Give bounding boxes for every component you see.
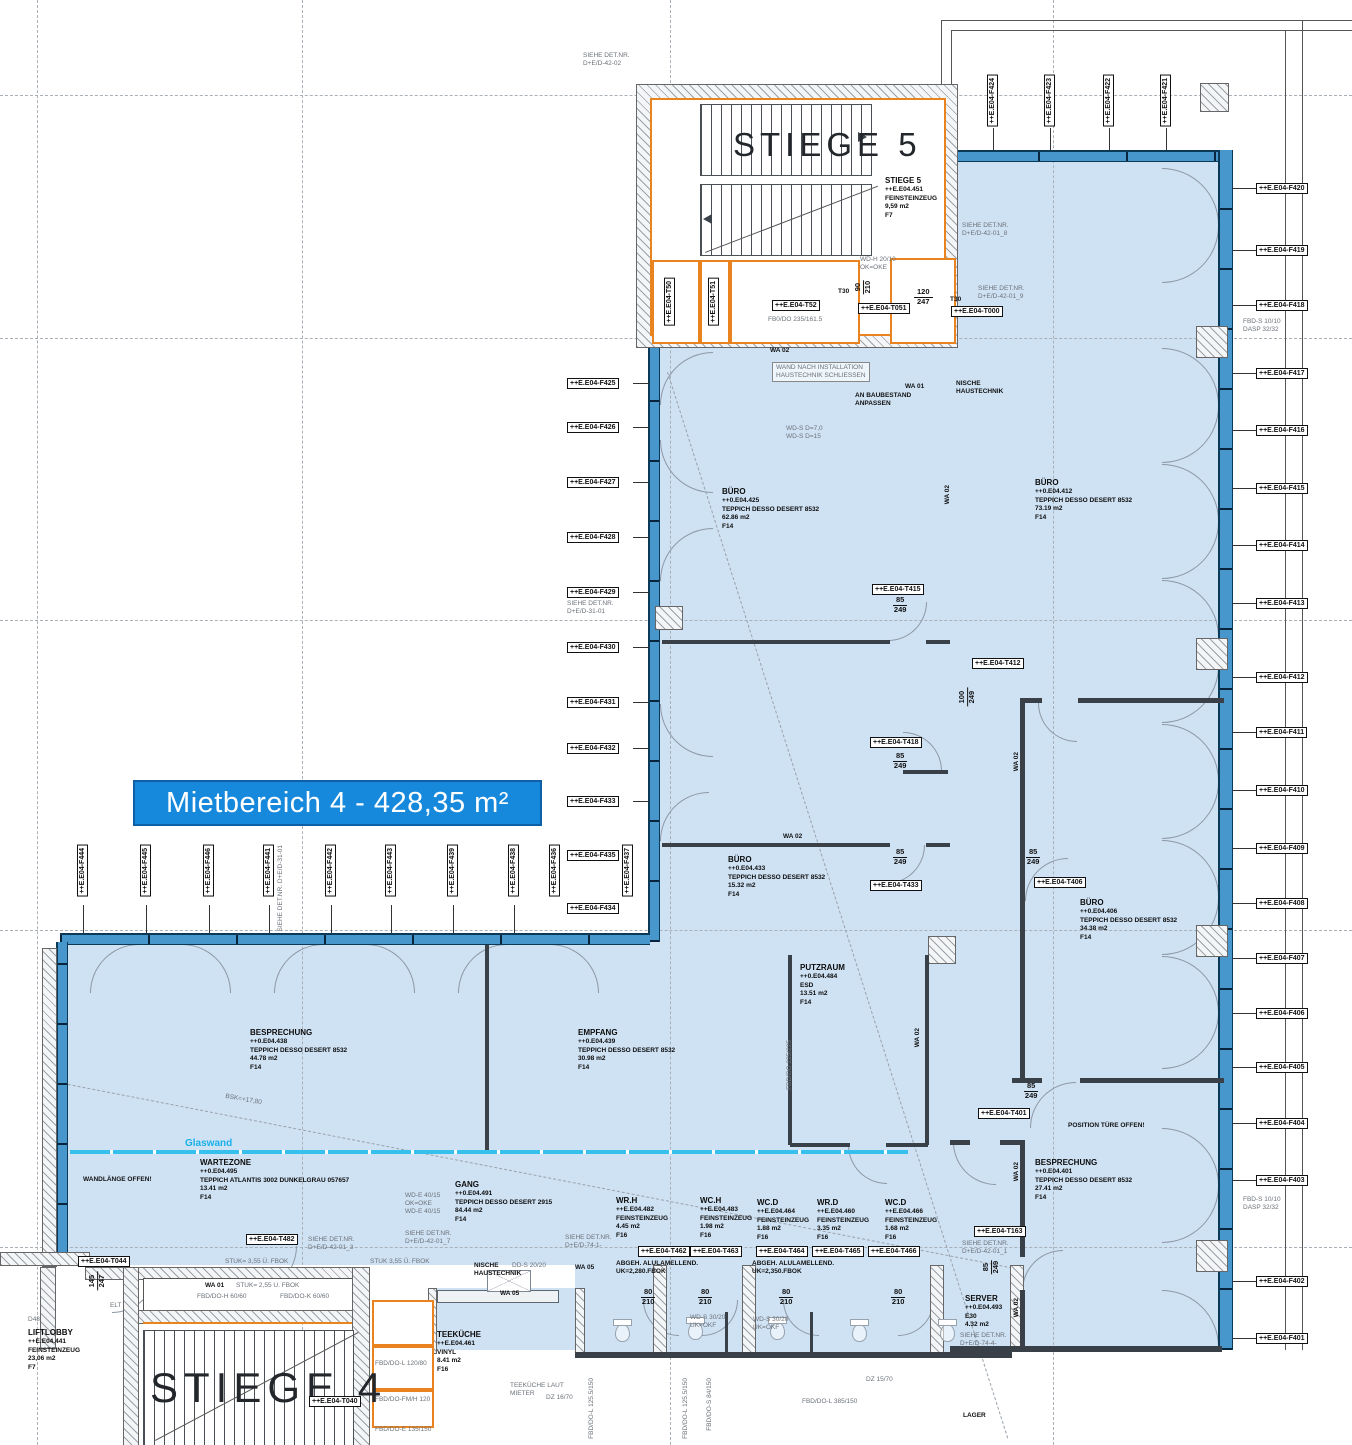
ref-tag: ++E.E04-T412 — [972, 658, 1024, 669]
annotation-text: NISCHE HAUSTECHNIK — [956, 380, 1003, 396]
annotation-text: FBD/DO-L 385/150 — [802, 1398, 857, 1406]
room-label-besprechung-401: BESPRECHUNG++0.E04.401TEPPICH DESSO DESE… — [1035, 1158, 1132, 1202]
wc-divider — [725, 1312, 728, 1352]
tag-leader — [1050, 128, 1051, 150]
facade-leftwing-left — [56, 942, 68, 1265]
ref-tag: ++E.E04-T401 — [978, 1108, 1030, 1119]
annotation-text: FBD/DO-FM/H 120 — [375, 1396, 430, 1404]
tag-leader — [1109, 128, 1110, 150]
ref-tag: ++E.E04-F414 — [1256, 540, 1308, 551]
ref-tag: ++E.E04-F438 — [508, 845, 519, 897]
partition-wall — [1000, 1140, 1022, 1145]
tag-leader — [1232, 677, 1256, 678]
ref-tag: ++E.E04-T462 — [638, 1246, 690, 1257]
tag-leader — [1232, 1013, 1256, 1014]
ref-tag: ++E.E04-T040 — [309, 1396, 361, 1407]
tag-leader — [633, 427, 649, 428]
annotation-text: FBD/DO 225/225 — [786, 1040, 794, 1090]
room-label-wcd-466: WC.D++E.E04.466FEINSTEINZEUG1.68 m2F16 — [885, 1198, 937, 1242]
facade-central-left — [648, 345, 660, 942]
tag-leader — [1232, 1281, 1256, 1282]
wc-divider — [810, 1312, 813, 1352]
shaft-room — [372, 1300, 434, 1346]
annotation-text: WA 02 — [1013, 1298, 1021, 1317]
room-label-wrd-460: WR.D++E.E04.460FEINSTEINZEUG3.35 m2F16 — [817, 1198, 869, 1242]
annotation-text: SIEHE DET.NR. D+E/D-31-01 — [567, 600, 614, 616]
annotation-text: ELT — [110, 1302, 121, 1310]
column — [655, 606, 683, 630]
column — [1196, 326, 1228, 358]
annotation-text: POSITION TÜRE OFFEN! — [1068, 1122, 1145, 1130]
boundary-line — [1285, 30, 1286, 1350]
stiege4-orange-edge — [143, 1322, 352, 1324]
room-label-buero-412: BÜRO++0.E04.412TEPPICH DESSO DESERT 8532… — [1035, 478, 1132, 522]
tag-leader — [331, 905, 332, 933]
ref-tag: ++E.E04-F442 — [325, 845, 336, 897]
ref-tag: ++E.E04-F431 — [567, 697, 619, 708]
partition-wall — [950, 1140, 970, 1145]
tag-leader — [1232, 732, 1256, 733]
annotation-text: FBD/DO-K 60/60 — [280, 1293, 329, 1301]
door-dimension: 85249 — [893, 596, 907, 614]
annotation-text: WA 02 — [1013, 752, 1021, 771]
room-label-empfang-439: EMPFANG++0.E04.439TEPPICH DESSO DESERT 8… — [578, 1028, 675, 1072]
ref-tag: ++E.E04-F406 — [1256, 1008, 1308, 1019]
tag-leader — [1232, 545, 1256, 546]
tag-leader — [1232, 1067, 1256, 1068]
annotation-text: WD-S D=7,0 WD-S D=15 — [786, 425, 823, 441]
ref-tag: ++E.E04-F407 — [1256, 953, 1308, 964]
ref-tag: ++E.E04-T418 — [870, 737, 922, 748]
annotation-text: SIEHE DET.NR. D+E/D-42-01_9 — [978, 285, 1025, 301]
annotation-text: WA 02 — [770, 347, 789, 355]
room-label-gang-491: GANG++0.E04.491TEPPICH DESSO DESERT 2915… — [455, 1180, 552, 1224]
annotation-text: DZ 16/70 — [546, 1394, 573, 1402]
ref-tag: ++E.E04-F441 — [263, 845, 274, 897]
annotation-text: WAND NACH INSTALLATION HAUSTECHNIK SCHLI… — [772, 362, 870, 382]
annotation-text: WA 05 — [500, 1290, 519, 1298]
wall-wc-bottom — [575, 1352, 1012, 1358]
ref-tag: ++E.E04-T433 — [870, 880, 922, 891]
partition-wall — [1078, 698, 1224, 703]
annotation-text: WA 05 — [575, 1264, 594, 1272]
putzraum-wall — [925, 955, 929, 1145]
stiege4-wall — [123, 1267, 139, 1445]
lift-wall — [0, 1252, 90, 1266]
room-label-buero-406: BÜRO++0.E04.406TEPPICH DESSO DESERT 8532… — [1080, 898, 1177, 942]
glaswand-line — [70, 1150, 908, 1154]
tag-leader — [1232, 848, 1256, 849]
ref-tag: ++E.E04-T163 — [974, 1226, 1026, 1237]
ref-tag: ++E.E04-F420 — [1256, 183, 1308, 194]
grid-line-vertical — [302, 0, 303, 1445]
ref-tag: ++E.E04-F416 — [1256, 425, 1308, 436]
annotation-text: WA 01 — [905, 383, 924, 391]
tag-leader — [1232, 305, 1256, 306]
ref-tag: ++E.E04-F423 — [1044, 75, 1055, 127]
tag-leader — [1232, 1180, 1256, 1181]
annotation-text: WANDLÄNGE OFFEN! — [83, 1176, 152, 1184]
door-dimension: 80210 — [641, 1288, 655, 1306]
ref-tag: ++E.E04-T50 — [664, 278, 675, 326]
tag-leader — [633, 592, 649, 593]
ref-tag: ++E.E04-F443 — [385, 845, 396, 897]
room-label-buero-425: BÜRO++0.E04.425TEPPICH DESSO DESERT 8532… — [722, 487, 819, 531]
annotation-text: SIEHE DET.NR. D+E/D-42-01_1 — [962, 1240, 1009, 1256]
tag-leader — [453, 905, 454, 933]
door-dimension: 85249 — [893, 848, 907, 866]
room-label-wrh-482: WR.H++E.E04.482FEINSTEINZEUG4.45 m2F16 — [616, 1196, 668, 1240]
ref-tag: ++E.E04-F432 — [567, 743, 619, 754]
mietbereich-banner-text: Mietbereich 4 - 428,35 m² — [166, 787, 509, 820]
annotation-text: WD-S 30/20 UK=OKF — [753, 1316, 788, 1332]
annotation-text: FBD/DO-E 135/150 — [375, 1426, 431, 1434]
room-label-wcd-464: WC.D++E.E04.464FEINSTEINZEUG1.88 m2F16 — [757, 1198, 809, 1242]
ref-tag: ++E.E04-F444 — [77, 845, 88, 897]
ref-tag: ++E.E04-F434 — [567, 903, 619, 914]
tag-leader — [514, 905, 515, 933]
column — [1200, 83, 1229, 112]
wc-pier — [930, 1265, 944, 1354]
stiege5-closet — [652, 260, 700, 344]
putzraum-wall — [886, 1143, 928, 1147]
floor-plan-canvas: STIEGE 5 STIEGE 4 — [0, 0, 1352, 1445]
annotation-text: WD-E 40/15 OK=OKE WD-E 40/15 — [405, 1192, 440, 1216]
room-label-stiege5: STIEGE 5++E.E04.451FEINSTEINZEUG9,59 m2F… — [885, 176, 937, 220]
ref-tag: ++E.E04-F413 — [1256, 598, 1308, 609]
door-dimension: 85249 — [1026, 848, 1040, 866]
ref-tag: ++E.E04-T466 — [868, 1246, 920, 1257]
tag-leader — [633, 537, 649, 538]
ref-tag: ++E.E04-F409 — [1256, 843, 1308, 854]
annotation-text: SIEHE DET.NR. D+E/D-42-01_7 — [405, 1230, 452, 1246]
ref-tag: ++E.E04-F418 — [1256, 300, 1308, 311]
wc-pier — [742, 1265, 756, 1354]
door-dimension: 80210 — [891, 1288, 905, 1306]
annotation-text: T30 — [950, 296, 961, 304]
annotation-text: WA 01 — [205, 1282, 224, 1290]
ref-tag: ++E.E04-T415 — [872, 584, 924, 595]
ref-tag: ++E.E04-F433 — [567, 796, 619, 807]
boundary-line — [1302, 20, 1303, 1350]
annotation-text: Glaswand — [185, 1138, 232, 1151]
annotation-text: FBD/DO-S 84/150 — [706, 1378, 714, 1431]
ref-tag: ++E.E04-F415 — [1256, 483, 1308, 494]
grid-line-vertical — [37, 0, 38, 1445]
toilet-fixture — [940, 1324, 955, 1342]
toilet-fixture — [615, 1324, 630, 1342]
door-dimension: 85249 — [982, 1260, 1000, 1274]
tag-leader — [1232, 603, 1256, 604]
ref-tag: ++E.E04-F411 — [1256, 727, 1307, 738]
ref-tag: ++E.E04-F402 — [1256, 1276, 1308, 1287]
stair-arrow-icon — [703, 214, 712, 224]
annotation-text: SIEHE DET.NR. D+E/D-74-4- — [960, 1332, 1007, 1348]
annotation-text: WD-H 20/10 OK=OKE — [860, 256, 896, 272]
boundary-line — [951, 30, 1352, 31]
annotation-text: FBD-S 10/10 DASP 32/32 — [1243, 1196, 1281, 1212]
partition-wall — [662, 640, 890, 644]
ref-tag: ++E.E04-F425 — [567, 378, 619, 389]
annotation-text: SIEHE DET.NR. D+E/D-31-01 — [277, 845, 285, 932]
ref-tag: ++E.E04-F445 — [140, 845, 151, 897]
door-dimension: 90210 — [854, 280, 872, 294]
ref-tag: ++E.E04-F430 — [567, 642, 619, 653]
column — [928, 936, 956, 964]
partition-wall — [926, 843, 950, 847]
ref-tag: ++E.E04-F421 — [1160, 75, 1171, 127]
tag-leader — [633, 748, 649, 749]
partition-wall — [662, 843, 890, 847]
tag-leader — [269, 905, 270, 933]
facade-rightwing-top — [950, 150, 1224, 162]
tag-leader — [1232, 250, 1256, 251]
ref-tag: ++E.E04-T051 — [858, 303, 910, 314]
tag-leader — [1232, 790, 1256, 791]
annotation-text: SIEHE DET.NR. D+E/D-42-01_8 — [962, 222, 1009, 238]
door-dimension: 80210 — [779, 1288, 793, 1306]
ref-tag: ++E.E04-F410 — [1256, 785, 1308, 796]
putzraum-wall — [790, 1143, 850, 1147]
room-label-liftlobby-441: LIFTLOBBY++E.E04.441FEINSTEINZEUG23,06 m… — [28, 1328, 80, 1372]
ref-tag: ++E.E04-F403 — [1256, 1175, 1308, 1186]
room-label-besprechung-438: BESPRECHUNG++0.E04.438TEPPICH DESSO DESE… — [250, 1028, 347, 1072]
tag-leader — [1232, 488, 1256, 489]
tag-leader — [1232, 430, 1256, 431]
annotation-text: STUK 3,55 Ü. FBOK — [370, 1258, 430, 1266]
boundary-line — [941, 20, 1352, 21]
tag-leader — [1232, 903, 1256, 904]
tag-leader — [993, 128, 994, 150]
ref-tag: ++E.E04-F424 — [987, 75, 998, 127]
column — [1196, 1240, 1228, 1272]
annotation-text: SIEHE DET.NR. D+E/D-42-01_3 — [308, 1236, 355, 1252]
toilet-fixture — [852, 1324, 867, 1342]
annotation-text: AN BAUBESTAND ANPASSEN — [855, 392, 911, 408]
ref-tag: ++E.E04-F422 — [1103, 75, 1114, 127]
tag-leader — [83, 905, 84, 933]
annotation-text: DZ 15/70 — [866, 1376, 893, 1384]
annotation-text: SIEHE DET.NR. D+E/D-74-1- — [565, 1234, 612, 1250]
mietbereich-banner: Mietbereich 4 - 428,35 m² — [133, 780, 542, 826]
annotation-text: FB0/DO 235/161.5 — [768, 316, 822, 324]
tag-leader — [1232, 188, 1256, 189]
ref-tag: ++E.E04-F439 — [447, 845, 458, 897]
ref-tag: ++E.E04-F412 — [1256, 672, 1308, 683]
ref-tag: ++E.E04-T000 — [951, 306, 1003, 317]
door-dimension: 85249 — [893, 752, 907, 770]
partition-wall — [1080, 1078, 1224, 1083]
ref-tag: ++E.E04-T463 — [690, 1246, 742, 1257]
ref-tag: ++E.E04-F435 — [567, 850, 619, 861]
door-dimension: 145247 — [88, 1272, 106, 1291]
ref-tag: ++E.E04-T044 — [78, 1256, 130, 1267]
tag-leader — [633, 482, 649, 483]
tag-leader — [1232, 1338, 1256, 1339]
annotation-text: FBD-S 10/10 DASP 32/32 — [1243, 318, 1281, 334]
ref-tag: ++E.E04-T482 — [246, 1234, 298, 1245]
annotation-text: WD-S 30/20 UK=OKF — [690, 1314, 725, 1330]
ref-tag: ++E.E04-F408 — [1256, 898, 1308, 909]
stiege5-title: STIEGE 5 — [733, 126, 922, 164]
partition-wall — [1020, 1140, 1025, 1257]
hatched-wall — [42, 948, 57, 1267]
annotation-text: WA 02 — [783, 833, 802, 841]
tag-leader — [633, 702, 649, 703]
ref-tag: ++E.E04-T406 — [1034, 877, 1086, 888]
tag-leader — [1232, 1123, 1256, 1124]
room-label-buero-433: BÜRO++0.E04.433TEPPICH DESSO DESERT 8532… — [728, 855, 825, 899]
annotation-text: DD-S 20/20 — [512, 1262, 546, 1270]
tag-leader — [633, 801, 649, 802]
annotation-text: LAGER — [963, 1412, 986, 1420]
annotation-text: STUK= 3,55 Ü. FBOK — [225, 1258, 288, 1266]
column — [1196, 638, 1228, 670]
ref-tag: ++E.E04-T51 — [708, 278, 719, 326]
tag-leader — [1232, 373, 1256, 374]
ref-tag: ++E.E04-T52 — [772, 300, 820, 311]
tag-leader — [633, 647, 649, 648]
room-label-server-493: SERVER++0.E04.493E304.32 m2 — [965, 1294, 1002, 1330]
besprechung-wall — [485, 945, 489, 1152]
room-label-putzraum: PUTZRAUM++0.E04.484ESD13.51 m2F14 — [800, 963, 845, 1007]
ref-tag: ++E.E04-F426 — [567, 422, 619, 433]
annotation-text: FBD/DO-L 125.5/150 — [682, 1378, 690, 1439]
wc-pier — [653, 1265, 667, 1354]
ref-tag: ++E.E04-F427 — [567, 477, 619, 488]
annotation-text: SIEHE DET.NR. D+E/D-42-02 — [583, 52, 630, 68]
ref-tag: ++E.E04-F419 — [1256, 245, 1308, 256]
annotation-text: FBD/DO-L 120/80 — [375, 1360, 427, 1368]
tag-leader — [1232, 958, 1256, 959]
facade-leftwing-top — [60, 933, 650, 945]
tag-leader — [146, 905, 147, 933]
teekueche-wall — [575, 1288, 585, 1354]
tag-leader — [633, 383, 649, 384]
annotation-text: WA 02 — [944, 485, 952, 504]
column — [1196, 925, 1228, 957]
annotation-text: T30 — [838, 288, 849, 296]
annotation-text: D48 — [28, 1316, 40, 1324]
annotation-text: WA 02 — [914, 1028, 922, 1047]
annotation-text: FBD/DO-L 125.5/150 — [588, 1378, 596, 1439]
door-dimension: 120247 — [914, 288, 933, 306]
ref-tag: ++E.E04-F428 — [567, 532, 619, 543]
room-label-wch-483: WC.H++E.E04.483FEINSTEINZEUG1.98 m2F16 — [700, 1196, 752, 1240]
door-dimension: 85249 — [1024, 1082, 1038, 1100]
ref-tag: ++E.E04-F437 — [622, 845, 633, 897]
annotation-text: STUK= 2,55 U. FBOK — [236, 1282, 299, 1290]
ref-tag: ++E.E04-F405 — [1256, 1062, 1308, 1073]
door-dimension: 100249 — [958, 688, 976, 707]
annotation-text: FBD/DO-H 60/60 — [197, 1293, 247, 1301]
tag-leader — [209, 905, 210, 933]
room-label-teekueche-461: TEEKÜCHE++E.E04.461VINYL8.41 m2F16 — [437, 1330, 481, 1374]
annotation-text: ABGEH. ALULAMELLEND. UK=2,280.FBOK — [616, 1260, 698, 1276]
stiege4-wall — [352, 1267, 370, 1445]
partition-wall — [926, 640, 950, 644]
tag-leader — [391, 905, 392, 933]
annotation-text: WA 02 — [1013, 1162, 1021, 1181]
ref-tag: ++E.E04-T464 — [756, 1246, 808, 1257]
ref-tag: ++E.E04-F417 — [1256, 368, 1308, 379]
door-dimension: 80210 — [698, 1288, 712, 1306]
ref-tag: ++E.E04-F436 — [549, 845, 560, 897]
annotation-text: ABGEH. ALULAMELLEND. UK=2,350.FBOK — [752, 1260, 834, 1276]
tag-leader — [1166, 128, 1167, 150]
ref-tag: ++E.E04-F401 — [1256, 1333, 1308, 1344]
ref-tag: ++E.E04-T465 — [812, 1246, 864, 1257]
ref-tag: ++E.E04-F404 — [1256, 1118, 1308, 1129]
partition-wall — [903, 770, 948, 774]
ref-tag: ++E.E04-F429 — [567, 587, 619, 598]
ref-tag: ++E.E04-F446 — [203, 845, 214, 897]
room-label-wartezone-495: WARTEZONE++0.E04.495TEPPICH ATLANTIS 300… — [200, 1158, 349, 1202]
